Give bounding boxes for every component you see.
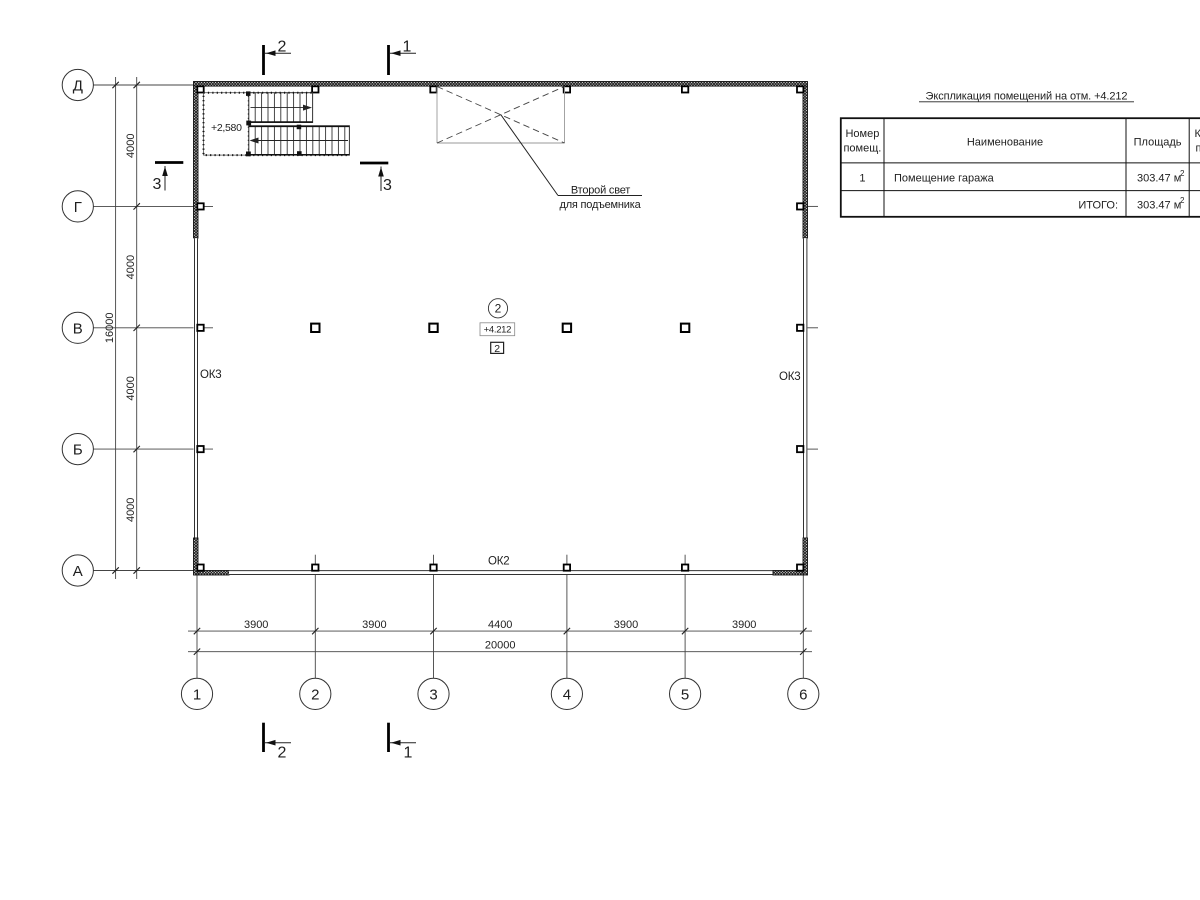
svg-text:А: А: [73, 563, 83, 580]
svg-text:4000: 4000: [125, 498, 137, 522]
svg-text:3: 3: [153, 176, 162, 193]
svg-text:ОК3: ОК3: [779, 371, 800, 383]
svg-text:Кат.: Кат.: [1195, 128, 1200, 140]
svg-text:4400: 4400: [488, 619, 512, 631]
svg-text:4000: 4000: [125, 133, 137, 157]
svg-text:2: 2: [1180, 196, 1185, 205]
svg-text:3900: 3900: [362, 619, 386, 631]
svg-text:2: 2: [1180, 169, 1185, 178]
svg-text:3900: 3900: [244, 619, 268, 631]
svg-text:Номер: Номер: [845, 128, 879, 140]
svg-text:20000: 20000: [485, 639, 516, 651]
svg-text:3900: 3900: [614, 619, 638, 631]
svg-text:ОК2: ОК2: [488, 556, 509, 568]
svg-text:1: 1: [403, 39, 412, 56]
svg-text:5: 5: [681, 686, 689, 703]
svg-text:2: 2: [278, 745, 287, 762]
svg-text:Г: Г: [74, 199, 82, 216]
svg-text:для подъемника: для подъемника: [559, 199, 641, 211]
svg-text:2: 2: [494, 343, 500, 355]
svg-text:Наименование: Наименование: [967, 137, 1043, 149]
svg-text:ОК3: ОК3: [200, 369, 221, 381]
svg-text:4000: 4000: [125, 255, 137, 279]
svg-text:Помещение гаража: Помещение гаража: [894, 173, 995, 185]
svg-text:ИТОГО:: ИТОГО:: [1078, 200, 1118, 212]
svg-text:3: 3: [383, 177, 392, 194]
svg-text:Д: Д: [73, 78, 83, 95]
svg-text:пом: пом: [1196, 143, 1200, 155]
svg-text:+2,580: +2,580: [211, 122, 242, 134]
svg-text:3: 3: [429, 686, 437, 703]
svg-text:Второй свет: Второй свет: [571, 185, 630, 197]
svg-text:16000: 16000: [104, 313, 116, 344]
svg-text:303.47 м: 303.47 м: [1137, 173, 1181, 185]
svg-text:Площадь: Площадь: [1134, 137, 1182, 149]
svg-text:помещ.: помещ.: [843, 143, 881, 155]
svg-text:+4.212: +4.212: [484, 324, 512, 335]
svg-text:1: 1: [404, 745, 413, 762]
svg-text:Б: Б: [73, 442, 83, 459]
svg-text:4: 4: [563, 686, 571, 703]
svg-text:1: 1: [859, 173, 865, 185]
svg-text:2: 2: [495, 302, 502, 316]
svg-text:В: В: [73, 320, 83, 337]
svg-text:303.47 м: 303.47 м: [1137, 200, 1181, 212]
svg-text:2: 2: [311, 686, 319, 703]
svg-text:2: 2: [278, 39, 287, 56]
svg-text:6: 6: [799, 686, 807, 703]
svg-text:1: 1: [193, 686, 201, 703]
svg-text:Экспликация помещений на отм.: Экспликация помещений на отм. +4.212: [926, 91, 1128, 103]
svg-text:3900: 3900: [732, 619, 756, 631]
svg-text:4000: 4000: [125, 376, 137, 400]
